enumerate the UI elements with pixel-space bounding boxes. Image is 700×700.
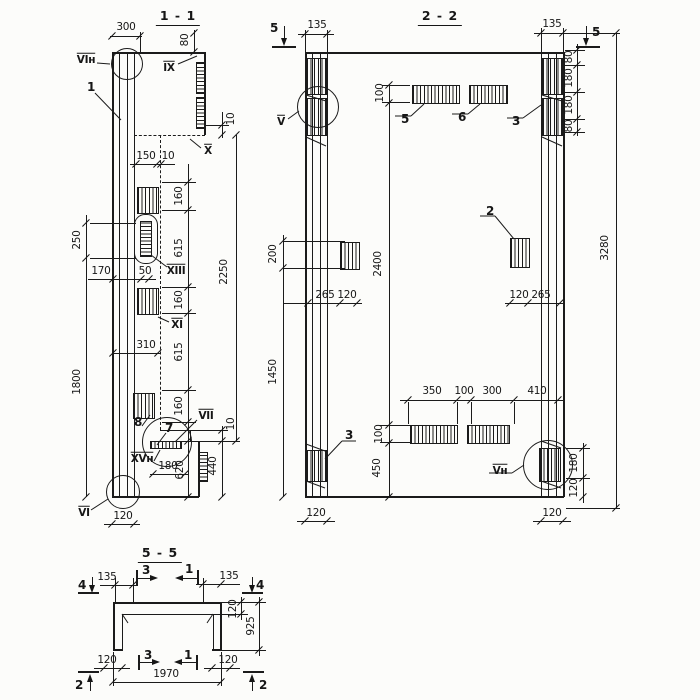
- outline-line: [113, 649, 123, 651]
- cut-mark-label: 5: [592, 26, 600, 38]
- arrow-right-icon: [152, 659, 160, 665]
- dim-label: 120: [542, 508, 561, 519]
- dim-label: 120: [228, 599, 239, 618]
- cut-mark-label: 5: [270, 22, 278, 34]
- section-2-2-title: 2 - 2: [418, 8, 462, 26]
- node-label: VI: [78, 508, 89, 519]
- cut-mark-bar: [78, 671, 99, 673]
- node-label: IX: [163, 63, 174, 74]
- cut-mark-label: 2: [259, 679, 267, 691]
- dim-line: [389, 84, 390, 497]
- hidden-edge: [160, 135, 161, 430]
- dim-label: 180: [569, 453, 580, 472]
- dim-label: 925: [246, 616, 257, 635]
- arrow-down-icon: [281, 38, 287, 46]
- dim-line: [113, 682, 221, 683]
- embed-strip: [410, 425, 458, 444]
- cut-mark-label: 1: [184, 649, 192, 661]
- ext-line: [162, 313, 196, 314]
- dim-label: 440: [208, 456, 219, 475]
- cut-mark-label: 4: [256, 579, 264, 591]
- outline-line: [127, 52, 128, 497]
- dim-line: [222, 426, 223, 497]
- cut-mark-bar: [78, 592, 99, 594]
- outline-line: [113, 602, 115, 650]
- arrow-right-icon: [150, 575, 158, 581]
- cut-mark-bar: [242, 592, 263, 594]
- cut-mark-bar: [272, 46, 296, 48]
- dim-line: [94, 668, 130, 669]
- cut-mark-bar: [243, 671, 264, 673]
- outline-line: [213, 614, 214, 650]
- dim-label: 180: [564, 95, 575, 114]
- ext-line: [457, 402, 458, 424]
- arrow-down-icon: [583, 38, 589, 46]
- dim-label: 135: [542, 19, 561, 30]
- dim-line: [188, 164, 189, 497]
- dim-label: 615: [174, 342, 185, 361]
- dim-label: 350: [422, 386, 441, 397]
- outline-line: [113, 602, 221, 604]
- arrow-left-icon: [174, 659, 182, 665]
- cut-flag-line: [181, 662, 197, 663]
- node-label: VIн: [77, 55, 95, 66]
- part-label: 3: [345, 429, 353, 441]
- dim-line: [283, 235, 284, 497]
- dim-label: 160: [174, 186, 185, 205]
- cut-mark-label: 4: [78, 579, 86, 591]
- dim-label: 310: [136, 340, 155, 351]
- dim-line: [130, 164, 175, 165]
- dim-label: 10: [226, 418, 237, 431]
- outline-line: [122, 614, 213, 615]
- ext-line: [566, 448, 590, 449]
- dim-label: 615: [174, 238, 185, 257]
- outline-line: [112, 52, 114, 497]
- embed-hatch: [510, 238, 530, 268]
- dim-label: 2250: [219, 259, 230, 285]
- cut-mark-label: 2: [75, 679, 83, 691]
- dim-line: [400, 400, 563, 401]
- dim-line: [236, 135, 237, 441]
- ext-line: [283, 241, 345, 242]
- dim-label: 1450: [268, 359, 279, 385]
- hidden-edge: [134, 135, 205, 136]
- section-1-1-title: 1 - 1: [156, 8, 200, 26]
- dim-label: 135: [219, 571, 238, 582]
- ext-line: [162, 182, 196, 183]
- node-label: XIII: [167, 266, 186, 277]
- arrow-left-icon: [175, 575, 183, 581]
- part-label: 1: [87, 81, 95, 93]
- outline-line: [122, 614, 123, 650]
- outline-line: [119, 52, 120, 497]
- slot-bar: [140, 221, 152, 257]
- dim-label: 450: [372, 458, 383, 477]
- ext-line: [90, 223, 136, 224]
- ext-line: [382, 102, 410, 103]
- embed-strip: [469, 85, 508, 104]
- dim-label: 50: [139, 266, 152, 277]
- embed-plate: [196, 62, 206, 94]
- node-label: XVн: [131, 454, 154, 465]
- dim-label: 180: [564, 68, 575, 87]
- detail-circle: [297, 86, 339, 128]
- outline-line: [305, 496, 564, 498]
- dim-label: 135: [97, 572, 116, 583]
- dim-label: 10: [226, 113, 237, 126]
- dim-label: 250: [72, 230, 83, 249]
- dim-label: 300: [116, 22, 135, 33]
- dim-label: 180: [158, 461, 177, 472]
- dim-label: 120: [569, 478, 580, 497]
- dim-line: [505, 303, 565, 304]
- outline-line: [220, 602, 222, 650]
- dim-label: 265: [531, 290, 550, 301]
- embed-strip: [412, 85, 460, 104]
- dim-line: [283, 303, 362, 304]
- ext-line: [162, 210, 196, 211]
- dim-label: 300: [482, 386, 501, 397]
- part-label: 5: [401, 113, 409, 125]
- node-label: VII: [198, 411, 213, 422]
- dim-label: 80: [564, 51, 575, 64]
- outline-line: [134, 52, 135, 497]
- rib-hatch: [542, 58, 563, 95]
- rib-hatch: [306, 450, 327, 482]
- part-label: 8: [134, 416, 142, 428]
- part-label: 7: [165, 422, 173, 434]
- ext-line: [162, 287, 196, 288]
- ext-line: [283, 268, 345, 269]
- ext-line: [514, 402, 515, 424]
- dim-label: 120: [113, 511, 132, 522]
- embed-hatch: [137, 187, 159, 214]
- drawing-sheet: 1 - 1 300 80 VIн 1 IX X 10 150: [0, 0, 700, 700]
- embed-strip: [467, 425, 510, 444]
- dim-label: 160: [174, 290, 185, 309]
- cut-mark-label: 3: [144, 649, 152, 661]
- part-label: 3: [512, 115, 520, 127]
- rib-hatch: [542, 98, 563, 136]
- node-label: V: [277, 117, 285, 128]
- cut-mark-arrow: [90, 681, 91, 691]
- dim-label: 135: [307, 20, 326, 31]
- dim-label: 10: [162, 151, 175, 162]
- dim-label: 80: [180, 34, 191, 47]
- dim-label: 100: [454, 386, 473, 397]
- node-label: Vн: [493, 466, 508, 477]
- embed-hatch: [340, 242, 360, 270]
- dim-label: 410: [527, 386, 546, 397]
- part-label: 6: [458, 111, 466, 123]
- dim-label: 265: [315, 290, 334, 301]
- node-label: X: [204, 146, 212, 157]
- dim-label: 1800: [72, 369, 83, 395]
- dim-line: [616, 33, 617, 508]
- ext-line: [471, 402, 472, 424]
- cut-mark-label: 1: [185, 563, 193, 575]
- detail-circle: [111, 48, 143, 80]
- outline-line: [305, 52, 564, 54]
- dim-label: 1970: [153, 669, 179, 680]
- dim-label: 2400: [373, 251, 384, 277]
- dim-label: 100: [375, 83, 386, 102]
- section-5-5-title: 5 - 5: [138, 545, 182, 563]
- dim-label: 120: [509, 290, 528, 301]
- detail-circle: [106, 475, 140, 509]
- dim-label: 200: [268, 244, 279, 263]
- dim-label: 160: [174, 396, 185, 415]
- dim-line: [112, 353, 160, 354]
- ext-line: [162, 390, 196, 391]
- dim-label: 120: [337, 290, 356, 301]
- ext-line: [408, 402, 409, 424]
- dim-label: 3280: [600, 235, 611, 261]
- cut-mark-arrow: [252, 681, 253, 691]
- embed-hatch: [137, 288, 159, 315]
- ext-line: [566, 508, 620, 509]
- dim-label: 120: [306, 508, 325, 519]
- dim-label: 100: [374, 424, 385, 443]
- dim-label: 150: [136, 151, 155, 162]
- node-label: XI: [171, 320, 182, 331]
- ext-line: [90, 258, 136, 259]
- part-label: 2: [486, 205, 494, 217]
- cut-mark-label: 3: [142, 564, 150, 576]
- dim-label: 170: [91, 266, 110, 277]
- cut-flag-line: [182, 578, 198, 579]
- leader-lines: [0, 0, 700, 700]
- dim-label: 80: [564, 120, 575, 133]
